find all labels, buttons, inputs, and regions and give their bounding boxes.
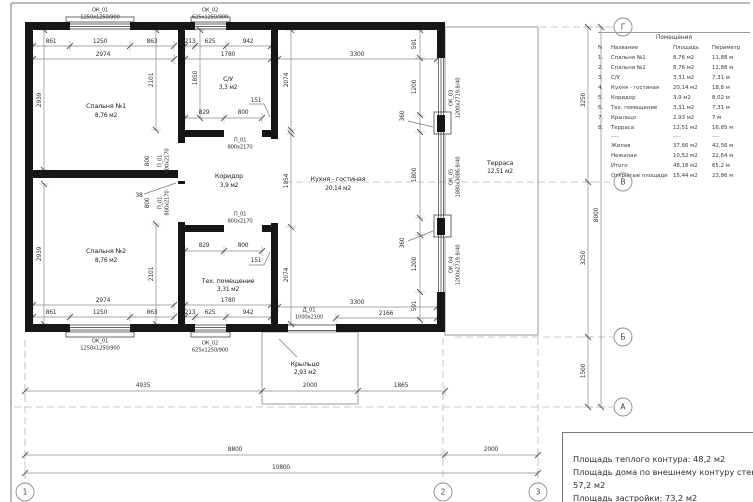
legend-cell: Коридор xyxy=(611,94,673,104)
legend-cell: 7,31 м xyxy=(712,74,750,84)
dimension-label: 625 xyxy=(205,310,216,316)
legend-cell: 48,18 м2 xyxy=(673,162,712,172)
legend-cell: Название xyxy=(611,44,673,54)
element-tag-label: Д_01 xyxy=(303,308,316,313)
legend-row: 7.Крыльцо2,93 м27 м xyxy=(598,114,750,124)
element-tag-label: ОК_02 xyxy=(202,8,218,13)
legend-cell: 11,88 м xyxy=(712,64,750,74)
room-area-label: 20,14 м2 xyxy=(325,186,351,192)
dimension-label: 861 xyxy=(46,310,57,316)
legend-cell: 7,31 м xyxy=(712,104,750,114)
legend-row: 2.Спальня №28,76 м211,88 м xyxy=(598,64,750,74)
dimension-label: 213 xyxy=(185,310,196,316)
legend-cell: 8,76 м2 xyxy=(673,64,712,74)
legend-cell: Крыльцо xyxy=(611,114,673,124)
dimension-label: 861 xyxy=(46,39,57,45)
legend-cell xyxy=(598,142,611,152)
legend-separator-row: ------------ xyxy=(598,134,750,142)
dimension-label: 2074 xyxy=(284,73,290,87)
room-area-label: 3,3 м2 xyxy=(219,85,238,91)
legend-cell: 10,52 м2 xyxy=(673,152,712,162)
dimension-label: 3300 xyxy=(350,52,364,58)
legend-row: 6.Тех. помещение3,31 м27,31 м xyxy=(598,104,750,114)
element-tag-label: П_01 xyxy=(158,197,163,210)
legend-cell: 6. xyxy=(598,104,611,114)
room-area-label: 12,51 м2 xyxy=(487,169,513,175)
element-tag-label: 1250х1250/900 xyxy=(80,15,119,20)
legend-cell: 65,2 м xyxy=(712,162,750,172)
axis-marker-label: 2 xyxy=(441,488,446,497)
dimension-label: 4935 xyxy=(136,383,150,389)
dimension-label: 1780 xyxy=(221,52,235,58)
legend-cell: 7 м xyxy=(712,114,750,124)
legend-cell: 7. xyxy=(598,114,611,124)
dimension-label: 360 xyxy=(400,238,406,249)
legend-title: Помещения xyxy=(598,32,750,41)
legend-cell: Спальня №1 xyxy=(611,54,673,64)
legend-cell: 15,44 м2 xyxy=(673,172,712,182)
summary-line: Площадь дома по внешнему контуру стен: xyxy=(573,466,753,479)
axis-marker-label: Б xyxy=(620,333,625,342)
legend-cell: 20,14 м2 xyxy=(673,84,712,94)
room-area-label: 3,31 м2 xyxy=(217,287,239,293)
dimension-label: 38 xyxy=(135,193,142,199)
legend-cell: Кухня - гостиная xyxy=(611,84,673,94)
dimension-label: 2939 xyxy=(37,93,43,107)
element-tag-label: ОК_04 xyxy=(449,257,454,273)
element-tag-label: П_01 xyxy=(234,212,247,217)
legend-cell: 4. xyxy=(598,84,611,94)
legend-cell: 5. xyxy=(598,94,611,104)
dimension-label: 3250 xyxy=(581,251,587,265)
legend-cell: 22,64 м xyxy=(712,152,750,162)
room-area-label: 8,76 м2 xyxy=(95,258,117,264)
legend-cell: 2. xyxy=(598,64,611,74)
dimension-label: 942 xyxy=(243,39,254,45)
legend-cell: 18,8 м xyxy=(712,84,750,94)
dimension-label: 2974 xyxy=(96,298,110,304)
legend-cell xyxy=(598,162,611,172)
legend-table: NНазваниеПлощадьПериметр1.Спальня №18,76… xyxy=(598,44,750,182)
dimension-label: 8000 xyxy=(594,208,600,222)
element-tag-label: 800х2170 xyxy=(227,219,252,224)
dimension-label: 1200 xyxy=(412,80,418,94)
room-label: Крыльцо xyxy=(291,361,320,368)
dimension-label: 1850 xyxy=(193,71,199,85)
axis-marker-label: А xyxy=(620,403,625,412)
legend-cell: 3. xyxy=(598,74,611,84)
legend-cell: 8,76 м2 xyxy=(673,54,712,64)
legend-row: 5.Коридор3,9 м28,02 м xyxy=(598,94,750,104)
room-area-label: 3,9 м2 xyxy=(220,183,239,189)
dimension-label: 1250 xyxy=(93,39,107,45)
legend-row: 8.Терраса12,51 м216,85 м xyxy=(598,124,750,134)
legend-cell: Площадь xyxy=(673,44,712,54)
legend-row: 3.С/У3,31 м27,31 м xyxy=(598,74,750,84)
dimension-label: 829 xyxy=(199,243,210,249)
axis-marker-label: 3 xyxy=(536,488,541,497)
legend-cell: 8,02 м xyxy=(712,94,750,104)
terrace-porch-outlines xyxy=(262,27,538,404)
legend-cell: Терраса xyxy=(611,124,673,134)
dimension-label: 1865 xyxy=(394,383,408,389)
element-tag-label: 1250х1250/900 xyxy=(80,346,119,351)
room-label: Тех. помещение xyxy=(202,278,255,285)
element-tag-label: 625х1250/900 xyxy=(192,15,228,20)
dimension-label: 1954 xyxy=(284,174,290,188)
dimension-label: 1800 xyxy=(412,168,418,182)
legend-cell: 1. xyxy=(598,54,611,64)
floor-plan-sheet: Помещения NНазваниеПлощадьПериметр1.Спал… xyxy=(0,0,753,502)
legend-cell: Нежилая xyxy=(611,152,673,162)
element-tag-label: 800х2170 xyxy=(165,190,170,215)
legend-cell xyxy=(598,152,611,162)
element-tag-label: ОК_02 xyxy=(202,341,218,346)
dimension-label: 2074 xyxy=(284,268,290,282)
dimension-label: 942 xyxy=(243,310,254,316)
axis-marker-label: 1 xyxy=(23,488,28,497)
room-area-label: 8,76 м2 xyxy=(95,113,117,119)
dimension-label: 625 xyxy=(205,39,216,45)
dimension-label: 360 xyxy=(400,111,406,122)
element-tag-label: П_01 xyxy=(234,138,247,143)
legend-cell: ---- xyxy=(611,134,673,142)
element-tag-label: П_01 xyxy=(158,155,163,168)
legend-cell: N xyxy=(598,44,611,54)
room-legend-table: Помещения NНазваниеПлощадьПериметр1.Спал… xyxy=(598,32,750,182)
legend-cell: 37,66 м2 xyxy=(673,142,712,152)
legend-cell: 2,93 м2 xyxy=(673,114,712,124)
element-tag-label: 1200х2719.8/40 xyxy=(456,78,461,119)
legend-cell xyxy=(598,134,611,142)
legend-cell: ---- xyxy=(673,134,712,142)
legend-cell: 12,51 м2 xyxy=(673,124,712,134)
summary-line: Площадь теплого контура: 48,2 м2 xyxy=(573,453,753,466)
area-summary-box: Площадь теплого контура: 48,2 м2 Площадь… xyxy=(562,432,753,502)
dimension-label: 2166 xyxy=(379,311,393,317)
dimension-label: 2974 xyxy=(96,52,110,58)
legend-cell: Спальня №2 xyxy=(611,64,673,74)
legend-cell: 23,86 м xyxy=(712,172,750,182)
legend-cell xyxy=(598,172,611,182)
element-tag-label: 1880х3086.8/40 xyxy=(456,157,461,198)
axis-marker-label: Г xyxy=(621,23,626,32)
axis-marker-label: В xyxy=(620,178,625,187)
legend-row: 1.Спальня №18,76 м211,88 м xyxy=(598,54,750,64)
dimension-label: 3250 xyxy=(581,93,587,107)
dimension-label: 3300 xyxy=(350,300,364,306)
dimension-label: 151 xyxy=(251,98,262,104)
legend-header-row: NНазваниеПлощадьПериметр xyxy=(598,44,750,54)
summary-line: 57,2 м2 xyxy=(573,479,753,492)
legend-cell: Итого xyxy=(611,162,673,172)
dimension-label: 8800 xyxy=(228,447,242,453)
dimension-label: 213 xyxy=(185,39,196,45)
dimension-label: 863 xyxy=(147,39,158,45)
element-tag-label: 1000х2100 xyxy=(295,315,323,320)
legend-total-row: Нежилая10,52 м222,64 м xyxy=(598,152,750,162)
dimension-label: 2101 xyxy=(149,73,155,87)
legend-cell: ---- xyxy=(712,134,750,142)
summary-line: Площадь застройки: 73,2 м2 xyxy=(573,492,753,502)
room-label: Спальня №2 xyxy=(86,248,126,255)
element-tag-label: 1200х2719.8/40 xyxy=(456,245,461,286)
dimension-label: 591 xyxy=(412,301,418,312)
dimension-label: 800 xyxy=(238,110,249,116)
legend-total-row: Жилая37,66 м242,56 м xyxy=(598,142,750,152)
element-tag-label: ОК_03 xyxy=(449,90,454,106)
legend-cell: Тех. помещение xyxy=(611,104,673,114)
element-tag-label: 800х2170 xyxy=(227,145,252,150)
dimension-label: 2000 xyxy=(303,383,317,389)
legend-cell: 11,88 м xyxy=(712,54,750,64)
legend-cell: 3,31 м2 xyxy=(673,74,712,84)
dimension-label: 800 xyxy=(145,198,151,209)
legend-cell: С/У xyxy=(611,74,673,84)
dimension-label: 1200 xyxy=(412,257,418,271)
dimension-label: 2000 xyxy=(484,447,498,453)
dimension-label: 829 xyxy=(199,110,210,116)
dimension-label: 151 xyxy=(251,258,262,264)
room-label: Терраса xyxy=(487,160,513,167)
room-label: Кухня - гостиная xyxy=(311,176,366,183)
legend-total-row: Итого48,18 м265,2 м xyxy=(598,162,750,172)
dimension-label: 2101 xyxy=(149,267,155,281)
element-tag-label: 800х2170 xyxy=(165,148,170,173)
dimension-label: 1500 xyxy=(581,364,587,378)
room-label: Коридор xyxy=(215,173,243,180)
room-area-label: 2,93 м2 xyxy=(294,370,316,376)
element-tag-label: 625х1250/900 xyxy=(192,348,228,353)
room-label: Спальня №1 xyxy=(86,103,126,110)
legend-cell: 42,56 м xyxy=(712,142,750,152)
element-tag-label: ОК_01 xyxy=(92,339,108,344)
dimension-label: 591 xyxy=(412,39,418,50)
dimension-label: 863 xyxy=(147,310,158,316)
legend-cell: 3,9 м2 xyxy=(673,94,712,104)
legend-cell: Жилая xyxy=(611,142,673,152)
legend-cell: 3,31 м2 xyxy=(673,104,712,114)
dimension-label: 2939 xyxy=(37,247,43,261)
legend-cell: 16,85 м xyxy=(712,124,750,134)
legend-row: 4.Кухня - гостиная20,14 м218,8 м xyxy=(598,84,750,94)
room-label: С/У xyxy=(223,76,233,83)
dimension-label: 1780 xyxy=(221,298,235,304)
dimension-label: 1250 xyxy=(93,310,107,316)
dimension-label: 800 xyxy=(145,156,151,167)
element-tag-label: ОК_05 xyxy=(449,169,454,185)
legend-cell: 8. xyxy=(598,124,611,134)
element-tag-label: ОК_01 xyxy=(92,8,108,13)
dimension-label: 10800 xyxy=(272,465,290,471)
legend-cell: Периметр xyxy=(712,44,750,54)
dimension-label: 800 xyxy=(238,243,249,249)
